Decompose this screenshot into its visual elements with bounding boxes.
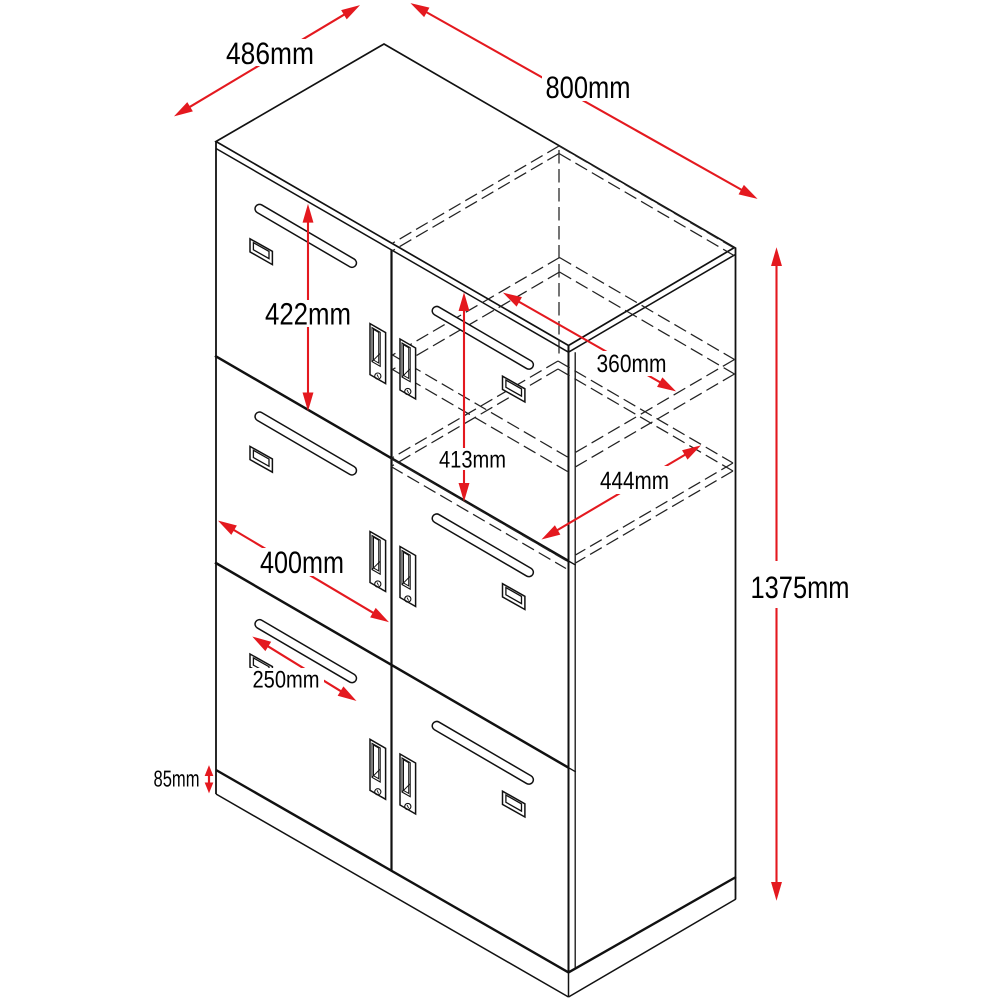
svg-text:1375mm: 1375mm: [751, 570, 850, 605]
svg-text:250mm: 250mm: [253, 667, 320, 694]
svg-text:422mm: 422mm: [265, 297, 351, 332]
svg-text:400mm: 400mm: [260, 545, 344, 580]
svg-text:360mm: 360mm: [597, 350, 667, 378]
svg-text:413mm: 413mm: [439, 446, 506, 473]
svg-text:800mm: 800mm: [546, 70, 631, 105]
svg-text:486mm: 486mm: [226, 36, 314, 71]
svg-text:85mm: 85mm: [154, 765, 200, 791]
svg-text:444mm: 444mm: [600, 467, 669, 495]
